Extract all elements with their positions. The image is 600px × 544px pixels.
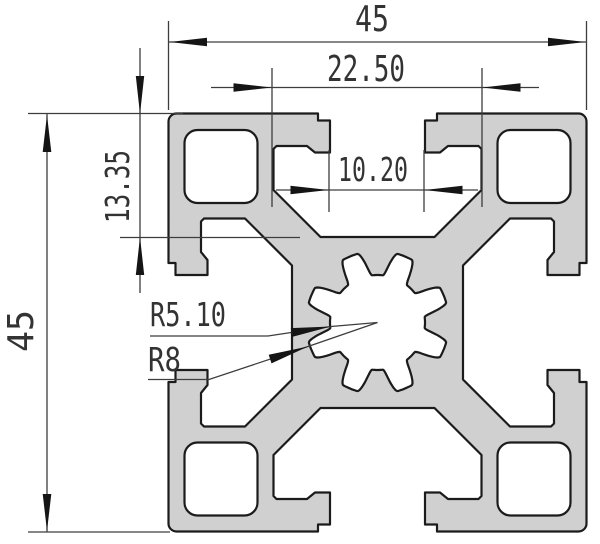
- dim-label-height-left: 45: [1, 310, 42, 352]
- corner-cavity-bottom-right: [498, 443, 571, 516]
- arrowhead: [483, 83, 521, 92]
- dim-label-slot-depth: 13.35: [98, 150, 137, 223]
- arrowhead: [548, 38, 586, 47]
- dim-label-width-top: 45: [355, 0, 389, 40]
- dim-label-slot-cavity-width: 22.50: [327, 49, 405, 90]
- arrowhead: [291, 186, 329, 194]
- corner-cavity-bottom-left: [185, 443, 258, 516]
- arrowhead: [136, 76, 144, 114]
- arrowhead: [234, 83, 272, 92]
- arrowhead: [43, 494, 52, 531]
- arrowhead: [136, 237, 144, 275]
- dimension-height-left: 45: [1, 114, 170, 532]
- dimension-slot-opening: 10.20: [276, 150, 478, 212]
- profile-drawing: 45 22.50 10.20 13.35 45 R: [0, 0, 600, 544]
- arrowhead: [425, 186, 463, 194]
- corner-cavity-top-right: [498, 130, 571, 203]
- dim-label-bore-radius: R5.10: [150, 295, 226, 334]
- arrowhead: [170, 38, 208, 47]
- dim-label-slot-opening: 10.20: [338, 150, 408, 189]
- arrowhead: [43, 115, 52, 152]
- dim-label-serration-radius: R8: [148, 340, 181, 379]
- technical-drawing-canvas: 45 22.50 10.20 13.35 45 R: [0, 0, 600, 544]
- corner-cavity-top-left: [185, 130, 258, 203]
